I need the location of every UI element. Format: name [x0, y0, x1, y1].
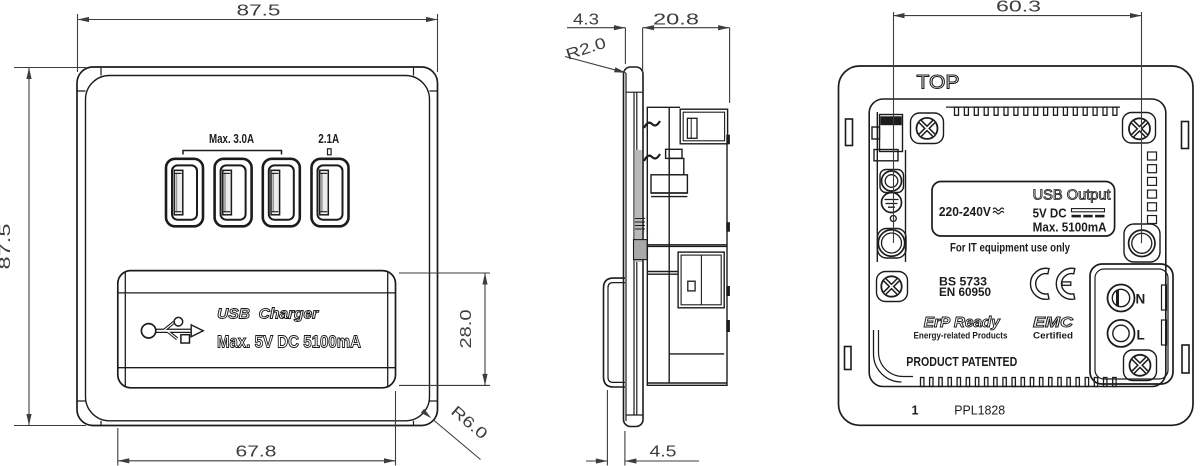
svg-text:EMC: EMC [1033, 315, 1074, 331]
svg-text:N: N [1136, 292, 1146, 307]
svg-text:2.1A: 2.1A [318, 132, 339, 146]
svg-text:Certified: Certified [1033, 331, 1073, 341]
svg-text:67.8: 67.8 [236, 444, 277, 461]
svg-text:20.8: 20.8 [653, 12, 699, 29]
svg-text:4.3: 4.3 [573, 12, 599, 29]
svg-text:87.5: 87.5 [0, 224, 14, 270]
svg-text:PRODUCT PATENTED: PRODUCT PATENTED [906, 355, 1017, 369]
svg-text:Energy-related Products: Energy-related Products [914, 331, 1008, 341]
svg-text:ErP Ready: ErP Ready [924, 315, 1001, 331]
svg-text:87.5: 87.5 [237, 3, 281, 20]
svg-text:4.5: 4.5 [650, 444, 677, 461]
svg-text:PPL1828: PPL1828 [954, 404, 1005, 418]
svg-text:220-240V: 220-240V [939, 205, 992, 219]
svg-text:1: 1 [912, 404, 919, 418]
svg-text:For IT equipment use only: For IT equipment use only [950, 243, 1071, 255]
svg-text:USB Charger: USB Charger [217, 307, 319, 323]
svg-text:60.3: 60.3 [996, 0, 1041, 16]
svg-text:L: L [1137, 328, 1145, 343]
svg-text:Max. 5100mA: Max. 5100mA [1033, 221, 1107, 235]
svg-text:5V DC: 5V DC [1033, 207, 1067, 221]
svg-text:Max. 5V DC 5100mA: Max. 5V DC 5100mA [217, 332, 361, 352]
svg-text:TOP: TOP [917, 73, 960, 94]
svg-text:EN 60950: EN 60950 [939, 287, 991, 299]
svg-text:USB Output: USB Output [1033, 188, 1111, 204]
svg-text:Max. 3.0A: Max. 3.0A [209, 132, 254, 146]
svg-text:28.0: 28.0 [458, 309, 475, 348]
